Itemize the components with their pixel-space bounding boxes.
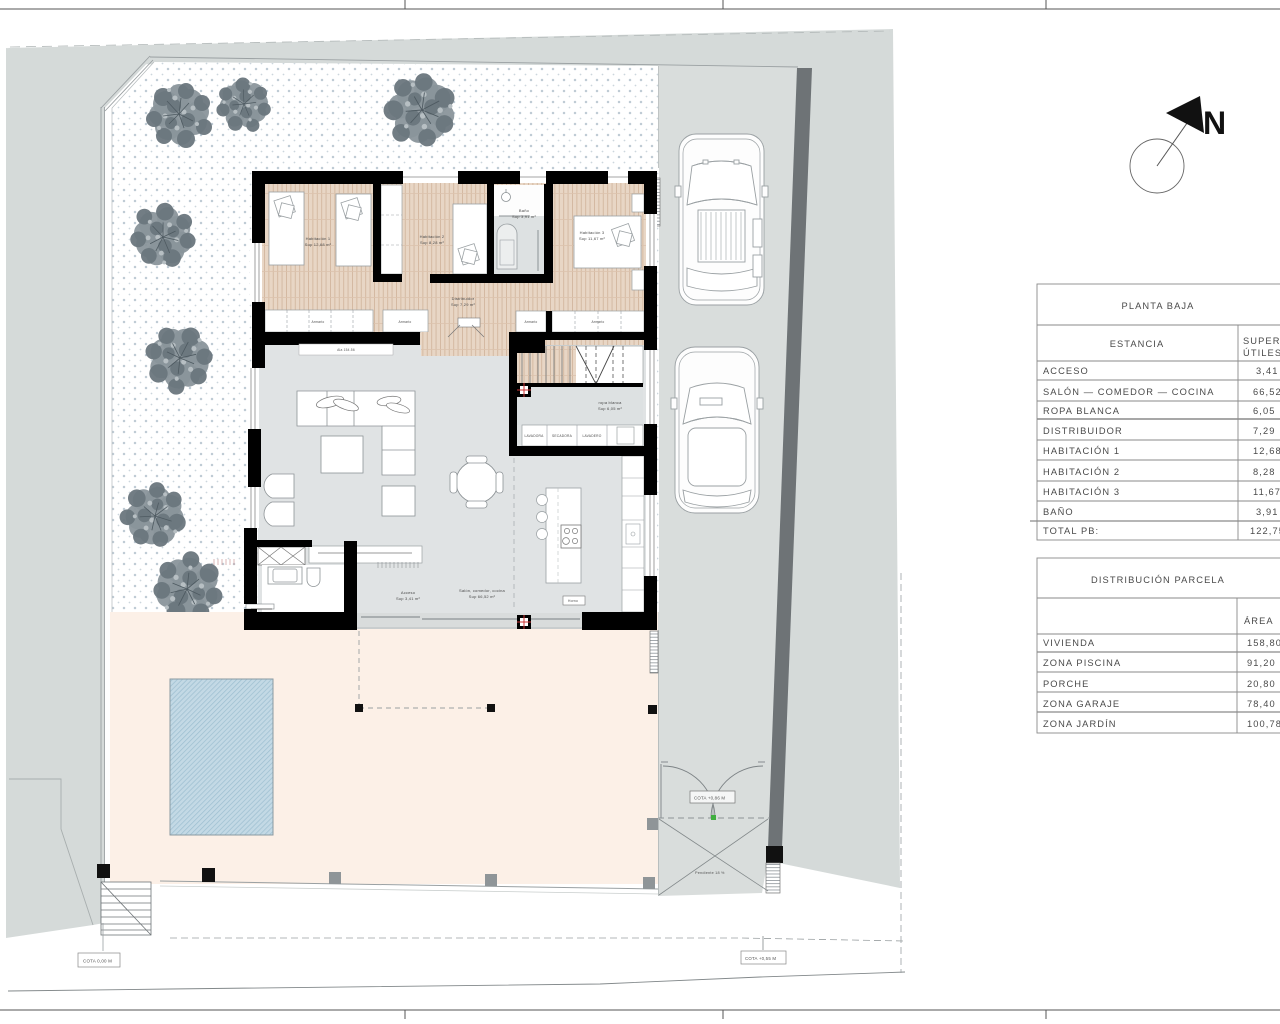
svg-text:TOTAL PB:: TOTAL PB: bbox=[1043, 526, 1099, 536]
svg-text:6,05: 6,05 bbox=[1253, 406, 1276, 416]
svg-text:Distribuidor: Distribuidor bbox=[452, 296, 475, 301]
svg-text:Armario: Armario bbox=[525, 320, 538, 324]
svg-text:SUPERF: SUPERF bbox=[1243, 336, 1280, 346]
svg-text:ÁREA: ÁREA bbox=[1244, 616, 1274, 626]
svg-text:ZONA JARDÍN: ZONA JARDÍN bbox=[1043, 719, 1117, 729]
svg-text:ZONA GARAJE: ZONA GARAJE bbox=[1043, 699, 1120, 709]
svg-text:Sup 66,52 m²: Sup 66,52 m² bbox=[469, 594, 496, 599]
svg-text:LAVADERO: LAVADERO bbox=[582, 434, 601, 438]
svg-text:12,68: 12,68 bbox=[1253, 446, 1280, 456]
svg-text:Armario: Armario bbox=[312, 320, 325, 324]
svg-text:Salón, comedor, cocina: Salón, comedor, cocina bbox=[459, 588, 506, 593]
svg-text:DISTRIBUCIÓN PARCELA: DISTRIBUCIÓN PARCELA bbox=[1091, 575, 1225, 585]
svg-text:HABITACIÓN 3: HABITACIÓN 3 bbox=[1043, 487, 1120, 497]
svg-text:91,20: 91,20 bbox=[1247, 658, 1276, 668]
svg-text:Sup 11,67 m²: Sup 11,67 m² bbox=[579, 236, 606, 241]
svg-text:122,75: 122,75 bbox=[1250, 526, 1280, 536]
svg-text:7,29: 7,29 bbox=[1253, 426, 1276, 436]
svg-text:VIVIENDA: VIVIENDA bbox=[1043, 638, 1095, 648]
svg-text:Habitación 2: Habitación 2 bbox=[420, 234, 445, 239]
svg-text:Habitación 1: Habitación 1 bbox=[306, 236, 331, 241]
svg-text:N: N bbox=[1203, 105, 1226, 141]
svg-text:Sup 12,68 m²: Sup 12,68 m² bbox=[305, 242, 332, 247]
svg-text:Acceso: Acceso bbox=[401, 590, 416, 595]
svg-text:Sup 6,05 m²: Sup 6,05 m² bbox=[598, 406, 622, 411]
svg-text:Sup 3,41 m²: Sup 3,41 m² bbox=[396, 596, 420, 601]
svg-text:Sup 7,29 m²: Sup 7,29 m² bbox=[451, 302, 475, 307]
svg-text:Sup 8,28 m²: Sup 8,28 m² bbox=[420, 240, 444, 245]
svg-text:66,52: 66,52 bbox=[1253, 387, 1280, 397]
svg-text:ZONA PISCINA: ZONA PISCINA bbox=[1043, 658, 1121, 668]
svg-text:Armario: Armario bbox=[399, 320, 412, 324]
svg-text:ropa blanca: ropa blanca bbox=[598, 400, 622, 405]
svg-text:3,91: 3,91 bbox=[1256, 507, 1279, 517]
svg-text:20,80: 20,80 bbox=[1247, 679, 1276, 689]
svg-text:158,80: 158,80 bbox=[1247, 638, 1280, 648]
svg-text:78,40: 78,40 bbox=[1247, 699, 1276, 709]
svg-text:BAÑO: BAÑO bbox=[1043, 507, 1074, 517]
svg-text:Habitación 3: Habitación 3 bbox=[580, 230, 605, 235]
svg-text:COTA +0,55 M: COTA +0,55 M bbox=[745, 956, 776, 961]
svg-text:PORCHE: PORCHE bbox=[1043, 679, 1089, 689]
svg-text:SALÓN — COMEDOR — COCINA: SALÓN — COMEDOR — COCINA bbox=[1043, 387, 1215, 397]
svg-text:Baño: Baño bbox=[519, 208, 530, 213]
svg-text:ESTANCIA: ESTANCIA bbox=[1110, 339, 1165, 349]
svg-text:Ala 154.56: Ala 154.56 bbox=[337, 348, 355, 352]
svg-text:Horno: Horno bbox=[568, 599, 578, 603]
svg-text:HABITACIÓN 2: HABITACIÓN 2 bbox=[1043, 467, 1120, 477]
svg-text:COTA 0,00 M: COTA 0,00 M bbox=[83, 959, 112, 964]
svg-text:PLANTA BAJA: PLANTA BAJA bbox=[1122, 301, 1195, 311]
svg-text:100,78: 100,78 bbox=[1247, 719, 1280, 729]
svg-text:HABITACIÓN 1: HABITACIÓN 1 bbox=[1043, 446, 1120, 456]
svg-text:COTA +0,86 M: COTA +0,86 M bbox=[694, 796, 725, 801]
svg-text:DISTRIBUIDOR: DISTRIBUIDOR bbox=[1043, 426, 1123, 436]
svg-text:11,67: 11,67 bbox=[1253, 487, 1280, 497]
svg-text:ROPA BLANCA: ROPA BLANCA bbox=[1043, 406, 1120, 416]
svg-text:SECADORA: SECADORA bbox=[552, 434, 573, 438]
svg-text:3,41: 3,41 bbox=[1256, 366, 1279, 376]
svg-text:Pendiente 18 %: Pendiente 18 % bbox=[695, 871, 725, 875]
svg-text:LAVADORA: LAVADORA bbox=[524, 434, 544, 438]
svg-text:8,28: 8,28 bbox=[1253, 467, 1276, 477]
svg-text:ACCESO: ACCESO bbox=[1043, 366, 1089, 376]
svg-text:Armario: Armario bbox=[592, 320, 605, 324]
svg-text:ÚTILES: ÚTILES bbox=[1243, 348, 1280, 358]
svg-text:Sup 3,91 m²: Sup 3,91 m² bbox=[512, 214, 536, 219]
